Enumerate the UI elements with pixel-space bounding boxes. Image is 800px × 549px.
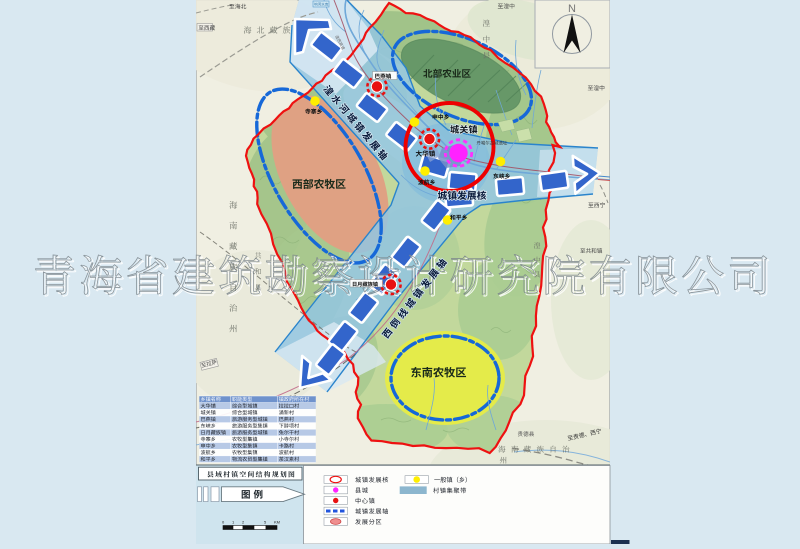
svg-text:N: N bbox=[568, 3, 576, 15]
svg-text:KM: KM bbox=[274, 520, 280, 525]
